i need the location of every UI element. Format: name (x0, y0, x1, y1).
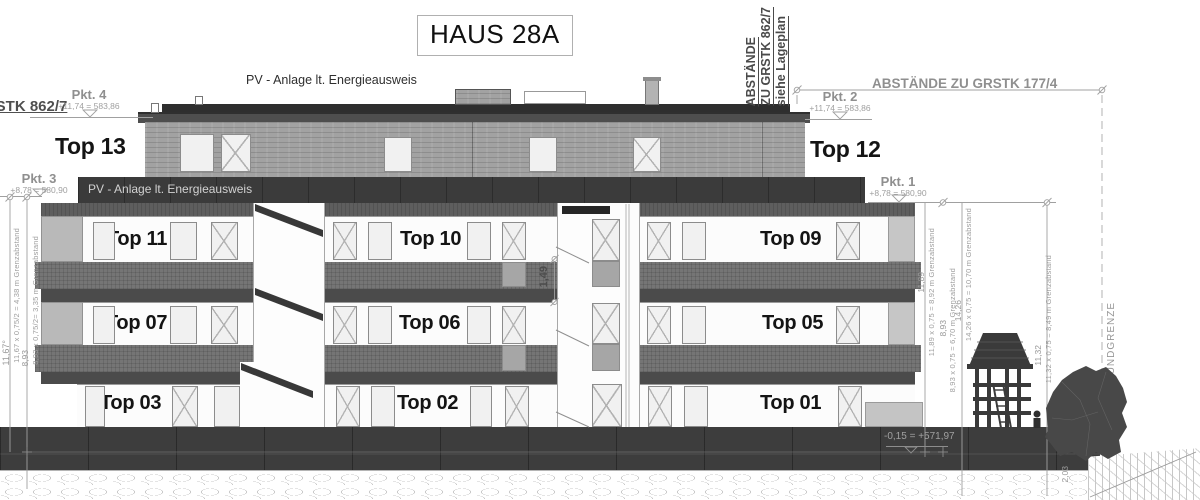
window (336, 386, 360, 427)
window (371, 386, 395, 427)
window (172, 386, 198, 427)
window (470, 386, 492, 427)
window (502, 222, 526, 260)
unit-label-top02: Top 02 (397, 392, 458, 415)
window (170, 306, 197, 344)
survey-point-4: Pkt. 4 +11,74 = 583,86 (49, 88, 129, 111)
window (368, 306, 392, 344)
roof-post (151, 103, 159, 113)
facade-joint (762, 122, 763, 178)
window (170, 222, 197, 260)
balcony-slab (41, 372, 915, 384)
survey-point-1: Pkt. 1 +8,78 = 580,90 (858, 175, 938, 198)
boundary-note-line2: ZU GRSTK 862/7 (759, 7, 773, 106)
dim-bottom-right: 2,03 (1060, 466, 1070, 483)
spandrel-panel (592, 261, 620, 287)
unit-label-top03: Top 03 (100, 392, 161, 415)
chimney-cap (643, 77, 661, 81)
window (838, 386, 862, 427)
balcony-band (35, 345, 921, 372)
window (684, 386, 708, 427)
dim-left-1-value: 11,67° (1, 340, 11, 365)
facade-panel (41, 302, 83, 345)
stone-wall (0, 470, 1090, 500)
window (333, 306, 357, 344)
unit-label-top12: Top 12 (810, 136, 881, 163)
dim-left-2-value: 8,93 (20, 350, 30, 367)
window (647, 306, 671, 344)
dim-left-2-formula: 8,93 x 0,75/2= 3,35 m Grenzabstand (31, 236, 40, 365)
window (633, 137, 661, 172)
window (467, 222, 491, 260)
window (180, 134, 214, 172)
retaining-wall-box (865, 402, 923, 427)
window (93, 222, 115, 260)
window (682, 222, 706, 260)
elevation-drawing: PV - Anlage lt. Energieausweis HAUS 28A … (0, 0, 1200, 500)
unit-label-top07: Top 07 (106, 312, 167, 335)
window (648, 386, 672, 427)
spandrel-panel (502, 262, 526, 287)
dim-right-2-value: 8,93 (938, 320, 948, 337)
ground-level-note: -0,15 = +571,97 (884, 431, 955, 442)
window (368, 222, 392, 260)
roof-post (195, 96, 203, 105)
window (592, 303, 620, 344)
facade-joint (472, 122, 473, 178)
window (85, 386, 105, 427)
ground-hatch (1088, 446, 1200, 500)
balcony-band (35, 262, 921, 289)
dim-right-4-formula: 11,32 x 0,75 = 8,49 m Grenzabstand (1044, 255, 1053, 383)
attic-pv-band: PV - Anlage lt. Energieausweis (78, 177, 865, 203)
window (505, 386, 529, 427)
unit-label-top01: Top 01 (760, 392, 821, 415)
boundary-note-right: ABSTÄNDE ZU GRSTK 177/4 (872, 76, 1057, 91)
chimney (645, 80, 659, 105)
window (333, 222, 357, 260)
window (836, 306, 860, 344)
dim-right-4-value: 11,32 (1033, 345, 1043, 366)
window (592, 384, 622, 427)
unit-label-top06: Top 06 (399, 312, 460, 335)
dim-middle-value: 1,49 (538, 266, 550, 287)
pv-band-note: PV - Anlage lt. Energieausweis (88, 182, 252, 196)
window (592, 219, 620, 261)
unit-label-top05: Top 05 (762, 312, 823, 335)
window (211, 306, 238, 344)
boundary-note-rotated: ABSTÄNDE ZU GRSTK 862/7 siehe Lageplan (744, 2, 788, 106)
pv-roof-note: PV - Anlage lt. Energieausweis (246, 73, 417, 87)
drawing-title: HAUS 28A (417, 15, 573, 56)
facade-panel (41, 216, 83, 262)
unit-label-top09: Top 09 (760, 228, 821, 251)
boundary-note-line3: siehe Lageplan (774, 16, 788, 106)
window (836, 222, 860, 260)
window (682, 306, 706, 344)
boundary-note-line1: ABSTÄNDE (744, 37, 758, 106)
window (384, 137, 412, 172)
dim-left-1-formula: 11,67 x 0,75/2 = 4,38 m Grenzabstand (12, 228, 21, 363)
stairwell-recess-left-ground (240, 362, 254, 427)
dim-right-1-value: 11,89 (916, 272, 926, 293)
survey-point-3: Pkt. 3 +8,78 = 580,90 (0, 172, 79, 195)
parapet-band (41, 203, 915, 216)
spandrel-panel (592, 344, 620, 371)
unit-label-top10: Top 10 (400, 228, 461, 251)
dim-right-1-formula: 11,89 x 0,75 = 8,92 m Grenzabstand (927, 228, 936, 356)
window (467, 306, 491, 344)
stairwell-recess-left (253, 203, 325, 427)
unit-label-top13: Top 13 (55, 133, 126, 160)
window (211, 222, 238, 260)
roof-terrace-box (524, 91, 586, 104)
dim-right-3-value: 14,26 (953, 300, 963, 321)
window (502, 306, 526, 344)
window (93, 306, 115, 344)
window (647, 222, 671, 260)
unit-label-top11: Top 11 (107, 228, 167, 251)
facade-panel (888, 302, 915, 345)
dim-right-2-formula: 8,93 x 0,75 = 6,70 m Grenzabstand (948, 268, 957, 392)
roof-elevator-box (455, 89, 511, 105)
window (214, 386, 240, 427)
dim-right-3-formula: 14,26 x 0,75 = 10,70 m Grenzabstand (964, 208, 973, 341)
balcony-slab (41, 289, 915, 302)
facade-panel (888, 216, 915, 262)
spandrel-panel (502, 345, 526, 371)
window (529, 137, 557, 172)
window (221, 134, 251, 172)
survey-point-2: Pkt. 2 +11,74 = 583,86 (800, 90, 880, 113)
boundary-line-label: GRUNDGRENZE (1106, 302, 1117, 391)
